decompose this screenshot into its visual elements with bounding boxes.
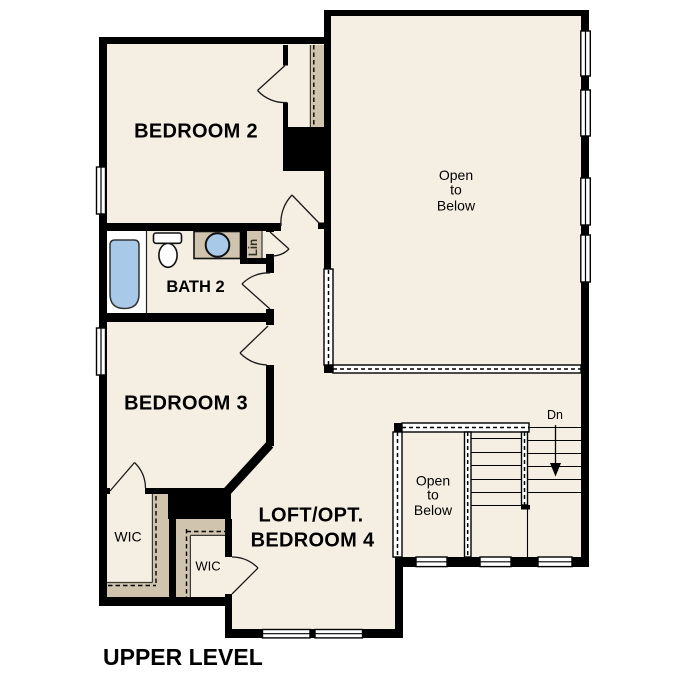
svg-text:UPPER LEVEL: UPPER LEVEL <box>103 644 263 670</box>
svg-text:to: to <box>450 182 462 198</box>
svg-text:LOFT/OPT.: LOFT/OPT. <box>259 505 364 527</box>
svg-text:BEDROOM 4: BEDROOM 4 <box>251 530 375 552</box>
svg-text:WIC: WIC <box>114 529 141 545</box>
svg-text:Dn: Dn <box>547 408 563 422</box>
svg-text:Below: Below <box>414 502 453 518</box>
svg-text:WIC: WIC <box>195 559 220 574</box>
svg-text:to: to <box>427 487 439 503</box>
svg-text:Lin: Lin <box>248 239 260 256</box>
svg-text:BEDROOM 3: BEDROOM 3 <box>124 393 248 415</box>
svg-text:BATH 2: BATH 2 <box>166 278 224 296</box>
svg-text:BEDROOM 2: BEDROOM 2 <box>134 121 258 143</box>
svg-text:Below: Below <box>437 198 476 214</box>
